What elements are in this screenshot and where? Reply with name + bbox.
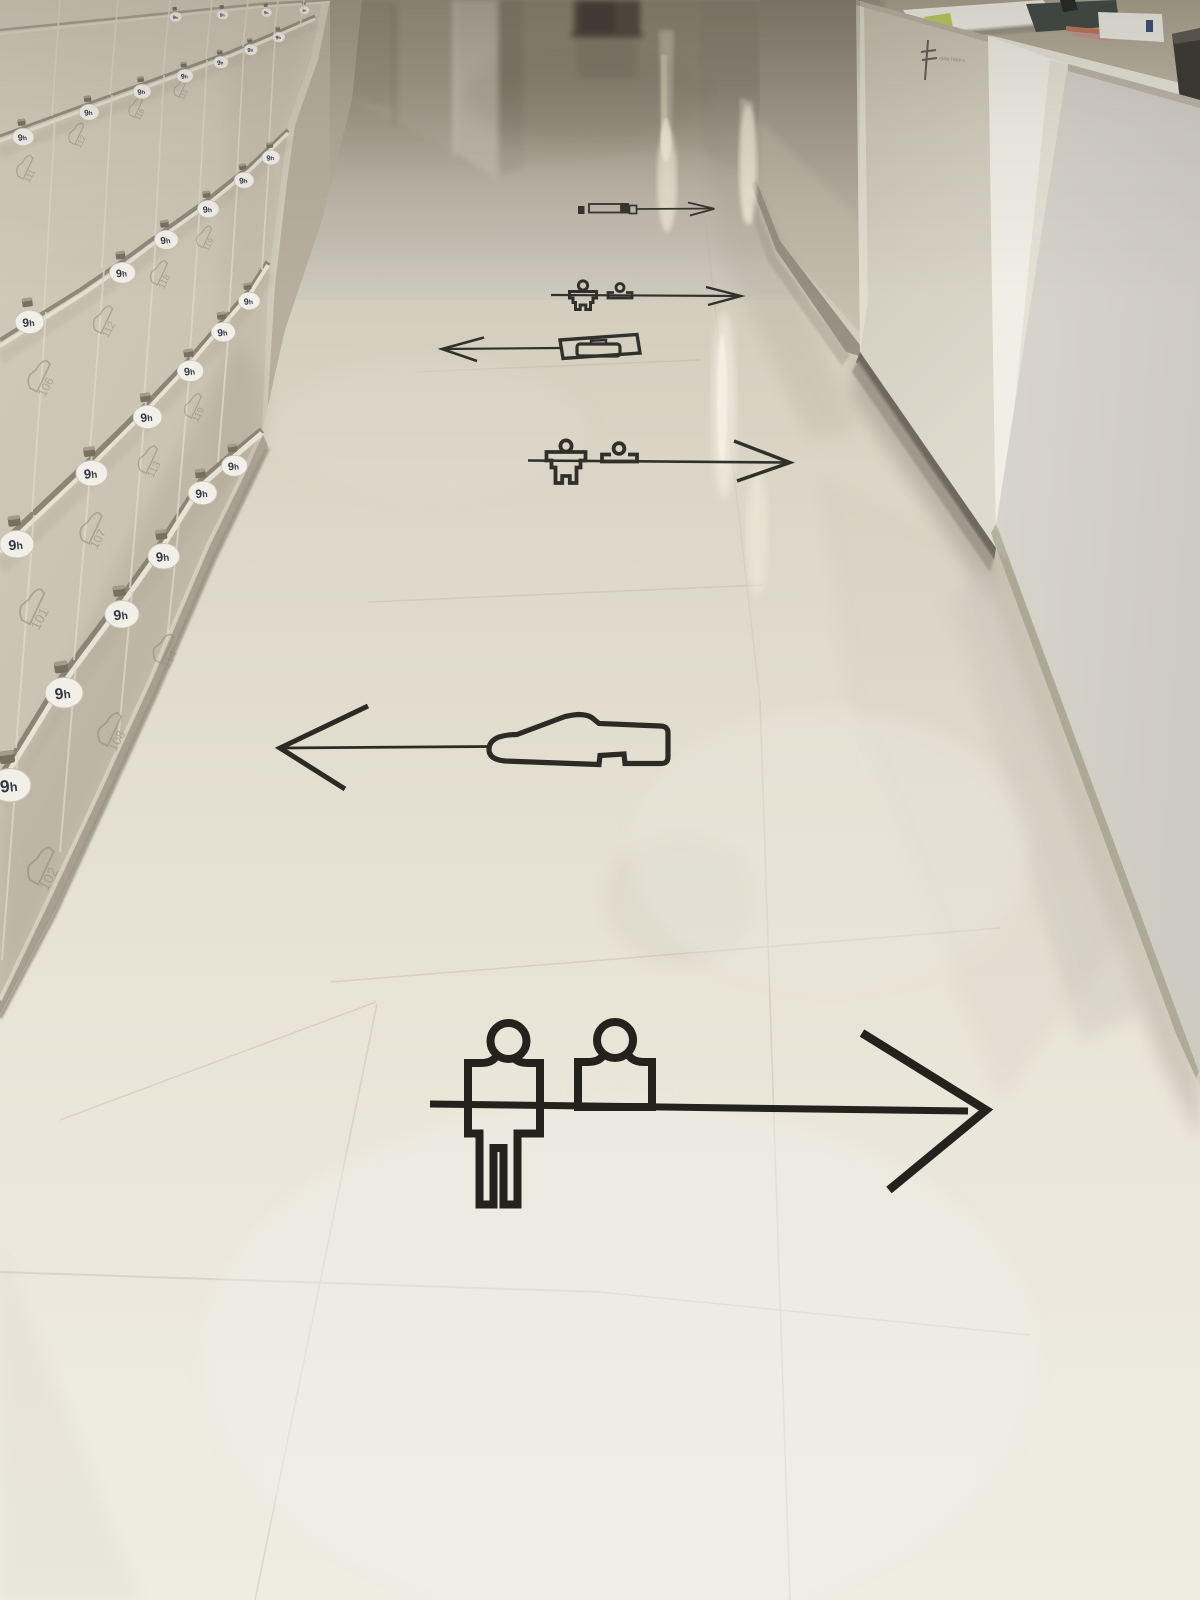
svg-text:9h: 9h (183, 366, 195, 379)
svg-text:9h: 9h (227, 460, 239, 473)
